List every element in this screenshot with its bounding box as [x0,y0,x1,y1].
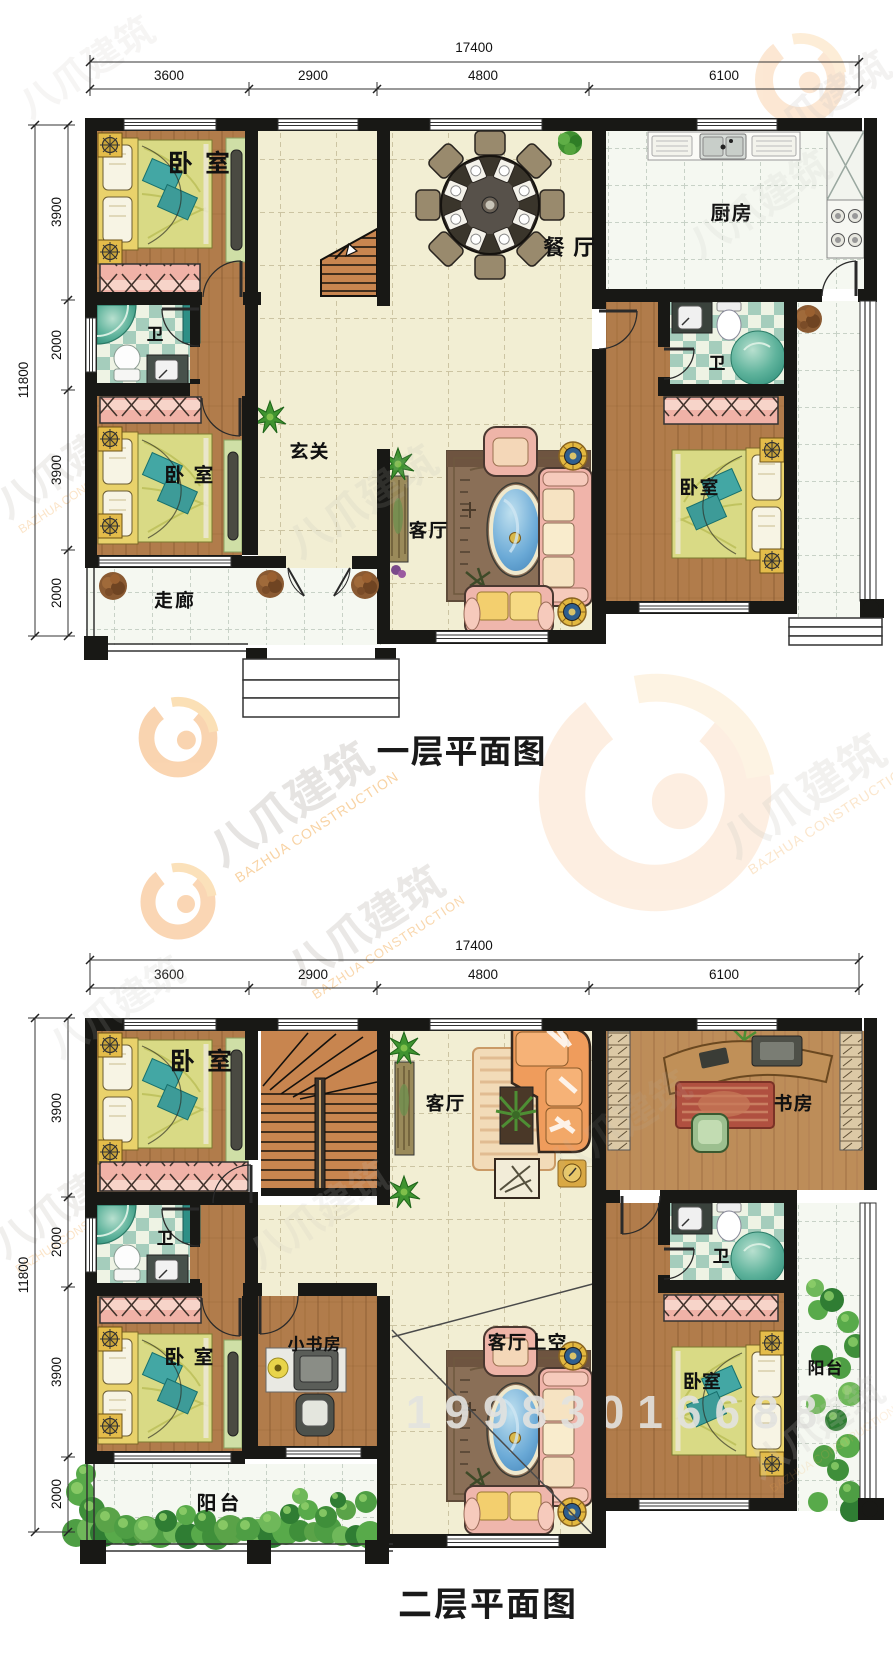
svg-text:3900: 3900 [49,455,64,485]
svg-text:2000: 2000 [49,330,64,360]
svg-text:4800: 4800 [468,967,498,982]
svg-text:6100: 6100 [709,68,739,83]
svg-text:19983016688: 19983016688 [406,1386,830,1438]
svg-text:3600: 3600 [154,967,184,982]
svg-text:2000: 2000 [49,1227,64,1257]
svg-text:11800: 11800 [16,1257,31,1294]
svg-text:2900: 2900 [298,68,328,83]
svg-text:3600: 3600 [154,68,184,83]
svg-text:3900: 3900 [49,1093,64,1123]
svg-text:3900: 3900 [49,197,64,227]
svg-text:11800: 11800 [16,362,31,399]
svg-text:3900: 3900 [49,1357,64,1387]
svg-text:2900: 2900 [298,967,328,982]
svg-text:4800: 4800 [468,68,498,83]
svg-text:2000: 2000 [49,1479,64,1509]
svg-text:17400: 17400 [455,938,493,953]
svg-text:2000: 2000 [49,578,64,608]
svg-text:17400: 17400 [455,40,493,55]
svg-text:6100: 6100 [709,967,739,982]
